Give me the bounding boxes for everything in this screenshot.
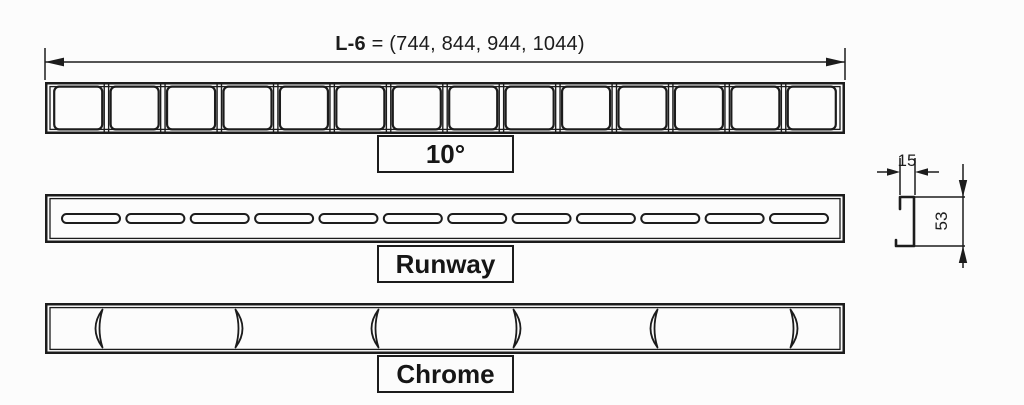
grate-label-chrome: Chrome	[396, 359, 494, 390]
slot-opening	[448, 214, 506, 223]
grate-inner-edge	[50, 87, 840, 130]
slot-opening	[384, 214, 442, 223]
channel-profile	[896, 197, 914, 246]
square-opening	[788, 87, 836, 130]
length-dimension-label: L-6 = (744, 844, 944, 1044)	[260, 33, 660, 56]
height-arrowhead-bottom-icon	[959, 246, 967, 263]
square-opening	[223, 87, 271, 130]
grate-label-10deg: 10°	[426, 139, 465, 170]
cross-section-graphic: 15 53	[853, 136, 983, 276]
square-opening	[731, 87, 779, 130]
slot-opening	[513, 214, 571, 223]
square-opening	[562, 87, 610, 130]
right-arrowhead-icon	[826, 58, 845, 67]
arc-opening	[236, 310, 243, 348]
square-opening	[506, 87, 554, 130]
slot-opening	[641, 214, 699, 223]
arc-opening	[372, 310, 379, 348]
grate-label-runway: Runway	[396, 249, 496, 280]
arc-opening	[96, 310, 103, 348]
grate-inner-edge	[50, 308, 840, 350]
grate-10deg-graphic	[45, 82, 845, 134]
grate-label-box-chrome: Chrome	[377, 355, 514, 393]
arc-opening	[791, 310, 798, 348]
width-arrowhead-right-icon	[915, 168, 928, 176]
slot-opening	[62, 214, 120, 223]
grate-runway-graphic	[45, 194, 845, 243]
square-opening	[336, 87, 384, 130]
arc-opening	[651, 310, 658, 348]
slot-opening	[770, 214, 828, 223]
square-opening	[449, 87, 497, 130]
grate-outer-edge	[46, 83, 844, 133]
square-opening	[54, 87, 102, 130]
dimension-variable-name: L-6	[335, 33, 366, 55]
grate-outer-edge	[46, 304, 844, 353]
slot-opening	[319, 214, 377, 223]
square-opening	[393, 87, 441, 130]
drawing-canvas: L-6 = (744, 844, 944, 1044) 10° Runway C…	[0, 0, 1024, 405]
square-opening	[280, 87, 328, 130]
left-arrowhead-icon	[45, 58, 64, 67]
square-opening	[675, 87, 723, 130]
cross-section-height-value: 53	[932, 212, 951, 231]
grate-label-box-10deg: 10°	[377, 135, 514, 173]
grate-outer-edge	[46, 195, 844, 242]
grate-chrome-graphic	[45, 303, 845, 354]
grate-label-box-runway: Runway	[377, 245, 514, 283]
grate-inner-edge	[50, 199, 840, 239]
slot-opening	[126, 214, 184, 223]
square-opening	[167, 87, 215, 130]
slot-opening	[191, 214, 249, 223]
arc-opening	[514, 310, 521, 348]
square-opening	[618, 87, 666, 130]
square-opening	[111, 87, 159, 130]
dimension-values: = (744, 844, 944, 1044)	[366, 33, 585, 55]
slot-opening	[255, 214, 313, 223]
slot-opening	[577, 214, 635, 223]
height-arrowhead-top-icon	[959, 180, 967, 197]
slot-opening	[706, 214, 764, 223]
